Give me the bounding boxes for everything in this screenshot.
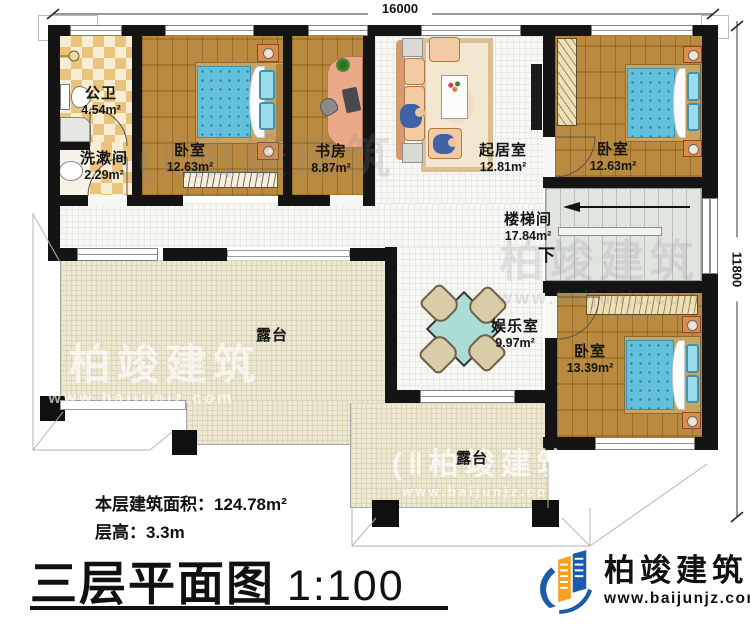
brand-logo: 柏竣建筑 www.baijunjz.com (536, 546, 750, 616)
column-terrace-4 (532, 500, 559, 527)
bedroom3-bed-sheet (672, 340, 685, 410)
window-terrace-top (77, 248, 158, 261)
plan-title: 三层平面图 1:100 (30, 545, 405, 614)
room-label-living: 起居室12.81m² (458, 143, 548, 174)
brand-url: www.baijunjz.com (604, 590, 750, 608)
wall-bedroom1-study (283, 25, 292, 206)
window-top-3 (308, 25, 368, 36)
bedroom1-bed-mattress (197, 66, 251, 138)
floor-area-line: 本层建筑面积：124.78m² (95, 490, 287, 515)
bedroom2-bed-sheet (673, 68, 686, 138)
door-threshold-wash (88, 195, 127, 206)
room-label-bedroom3: 卧室13.39m² (548, 344, 632, 375)
bedroom2-pillow-1 (687, 72, 700, 101)
wall-bottom-bedroom1 (127, 195, 183, 206)
plant-icon (336, 58, 350, 72)
stair-down-label: 下 (534, 246, 560, 265)
sliding-door-bedroom1 (183, 172, 278, 188)
plan-title-text: 三层平面图 (30, 545, 275, 614)
window-entertainment-bottom (420, 390, 515, 403)
bedroom3-pillow-2 (686, 375, 699, 403)
person-on-armchair (433, 134, 455, 154)
wall-bath-wash-divider (60, 142, 90, 150)
floor-area-label: 本层建筑面积： (95, 495, 214, 514)
sofa-cushion-1 (404, 58, 425, 85)
tv-icon (531, 64, 542, 130)
terrace-left-parapet (60, 400, 186, 410)
floor-height-label: 层高： (95, 523, 146, 542)
bedroom2-nightstand-1 (683, 46, 702, 63)
window-top-5 (591, 25, 693, 36)
bedroom3-pillow-1 (686, 344, 699, 373)
flowers-icon (446, 80, 462, 93)
window-bedroom3-bottom (595, 437, 695, 450)
dimension-width-label: 16000 (368, 1, 432, 16)
wall-exterior-left (48, 25, 60, 260)
armchair-top (429, 37, 460, 62)
room-label-bedroom1: 卧室12.63m² (150, 143, 230, 174)
bedroom3-nightstand-1 (682, 316, 701, 333)
person-on-sofa (400, 104, 422, 128)
bedroom1-nightstand-1 (257, 44, 279, 62)
bedroom3-wardrobe (586, 295, 698, 315)
stair-handrail (558, 227, 662, 236)
wall-stairs-bedroom3 (543, 281, 718, 293)
room-label-terrace-bottom: 露台 (442, 451, 502, 468)
room-label-bedroom2: 卧室12.63m² (573, 142, 653, 173)
brand-logo-icon (536, 546, 594, 616)
bedroom3-nightstand-2 (682, 412, 701, 429)
room-label-bath: 公卫4.54m² (66, 86, 136, 117)
floor-plan: (‖柏竣建筑 柏竣建筑 www.baijunjz.com (‖柏竣建筑 www.… (0, 0, 750, 627)
plan-scale: 1:100 (287, 562, 405, 611)
terrace-left-floor (60, 260, 385, 400)
wall-bottom-wash (48, 195, 88, 206)
window-stairwell-right (702, 198, 718, 274)
wall-terrace-top-b (163, 248, 227, 261)
wall-study-living (363, 25, 375, 206)
room-label-study: 书房8.87m² (291, 144, 371, 175)
bedroom2-pillow-2 (687, 103, 700, 131)
wall-bedroom2-bottom (543, 177, 718, 188)
room-label-wash: 洗漱间2.29m² (62, 151, 146, 182)
bedroom3-bed-mattress (626, 340, 674, 410)
brand-name: 柏竣建筑 (604, 555, 750, 586)
wall-bottom-study (278, 195, 330, 206)
window-top-4 (421, 25, 521, 36)
bedroom2-bed-mattress (627, 68, 675, 138)
room-label-entertainment: 娱乐室9.97m² (472, 319, 558, 350)
bedroom2-nightstand-2 (683, 140, 702, 157)
side-table-1 (402, 38, 423, 57)
railing-terrace-top (227, 250, 350, 257)
window-top-2 (165, 25, 254, 36)
hallway-floor (60, 203, 548, 247)
column-terrace-2 (172, 430, 197, 455)
wall-terrace-top-c (350, 248, 397, 261)
floor-height-value: 3.3m (146, 523, 185, 542)
door-threshold-study (330, 195, 363, 206)
side-table-2 (402, 143, 423, 163)
bedroom1-pillow-1 (259, 70, 275, 100)
floor-height-line: 层高：3.3m (95, 518, 185, 543)
column-terrace-3 (372, 500, 399, 527)
bedroom1-pillow-2 (259, 102, 275, 130)
floor-area-value: 124.78m² (214, 495, 287, 514)
washer-icon (60, 117, 91, 142)
bedroom2-wardrobe (557, 38, 577, 126)
dimension-height-label: 11800 (730, 238, 745, 302)
window-top-1 (70, 25, 122, 36)
room-label-terrace-left: 露台 (242, 328, 302, 345)
wall-entertainment-left (385, 247, 397, 403)
bath-door-zone-floor (90, 142, 132, 150)
wall-terrace-top-a (48, 248, 77, 261)
title-underline (30, 606, 448, 610)
room-label-stairwell: 楼梯间17.84m² (483, 212, 573, 243)
bedroom1-nightstand-2 (257, 142, 279, 160)
wall-living-bedroom2 (543, 25, 555, 137)
